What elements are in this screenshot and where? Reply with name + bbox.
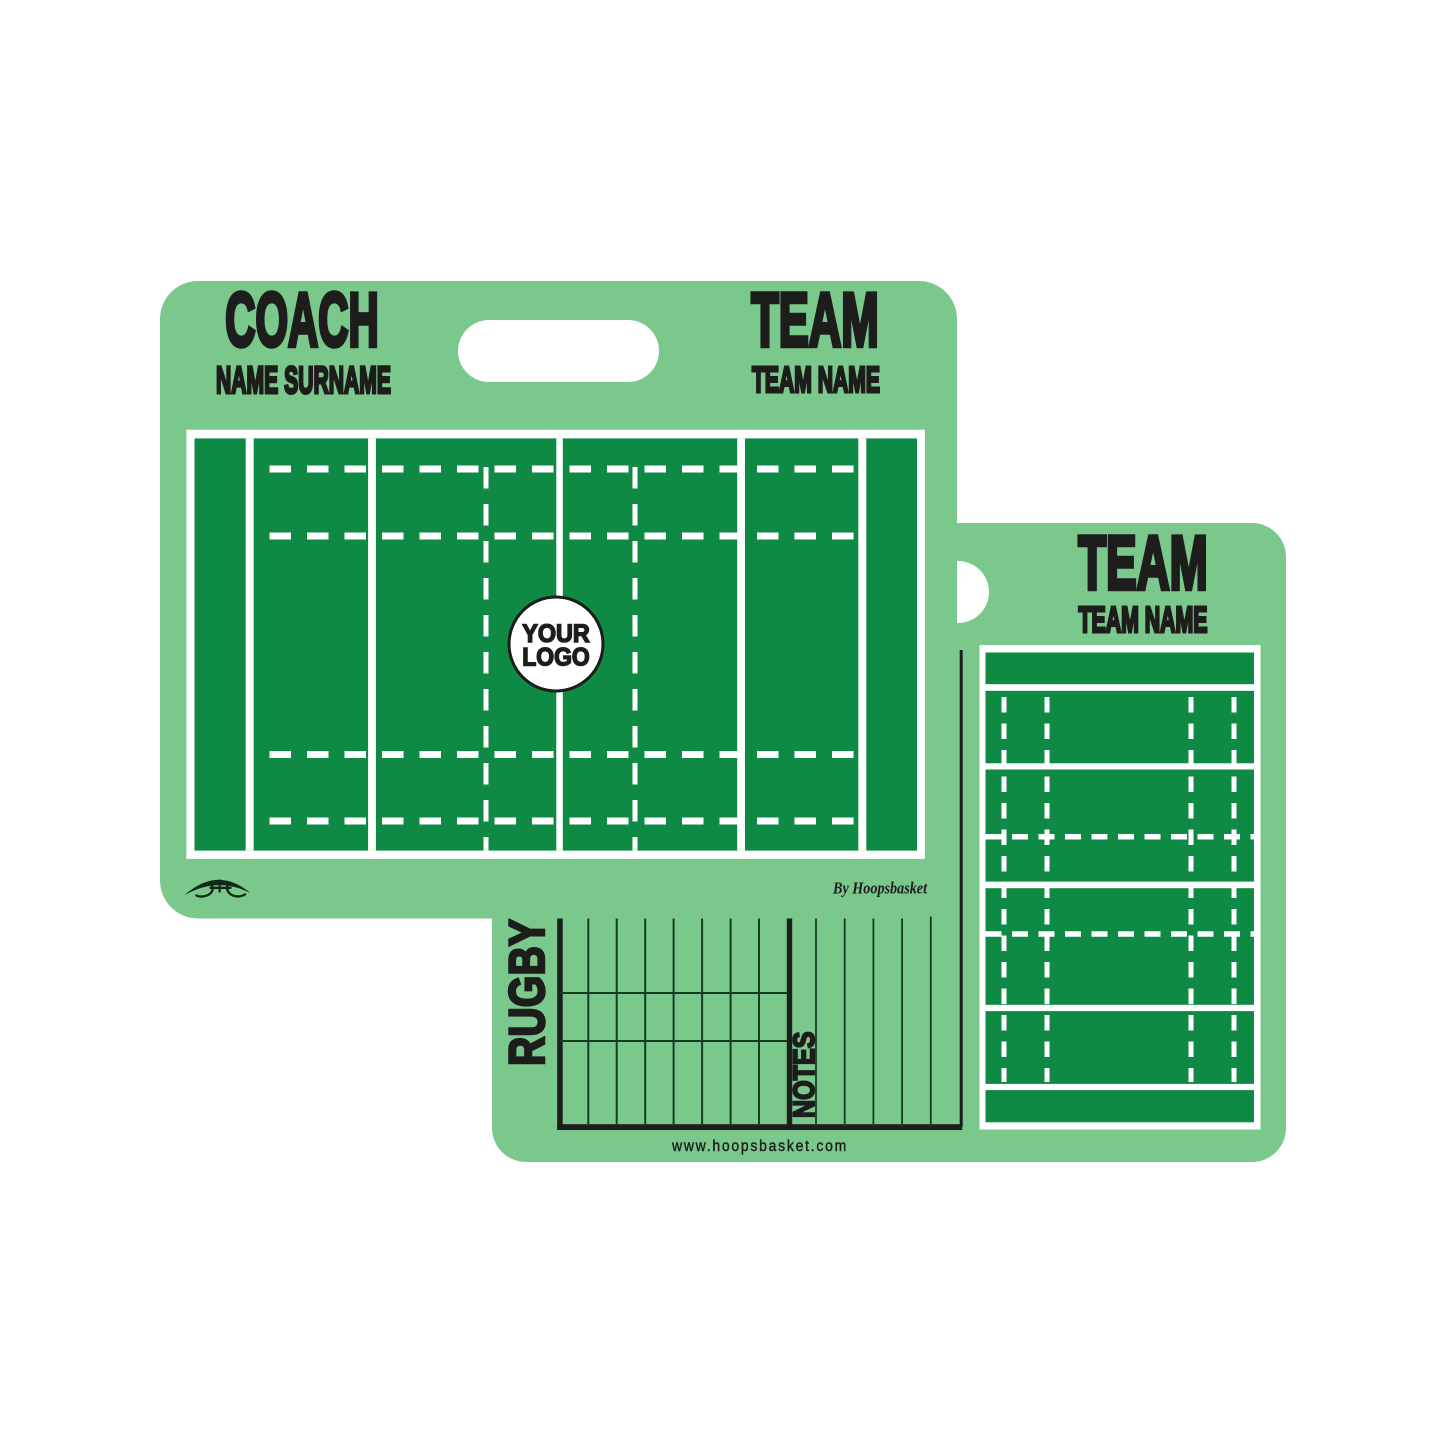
svg-text:RUGBY: RUGBY: [499, 919, 555, 1066]
svg-text:NAME SURNAME: NAME SURNAME: [216, 360, 391, 402]
svg-text:COACH: COACH: [225, 278, 379, 363]
svg-text:TEAM: TEAM: [1078, 521, 1208, 606]
svg-text:TEAM: TEAM: [751, 278, 879, 363]
svg-text:TEAM NAME: TEAM NAME: [1079, 599, 1208, 640]
svg-text:www.hoopsbasket.com: www.hoopsbasket.com: [671, 1138, 848, 1155]
svg-text:By Hoopsbasket: By Hoopsbasket: [832, 879, 928, 898]
svg-text:LOGO: LOGO: [522, 644, 590, 672]
svg-text:TEAM NAME: TEAM NAME: [752, 359, 880, 400]
